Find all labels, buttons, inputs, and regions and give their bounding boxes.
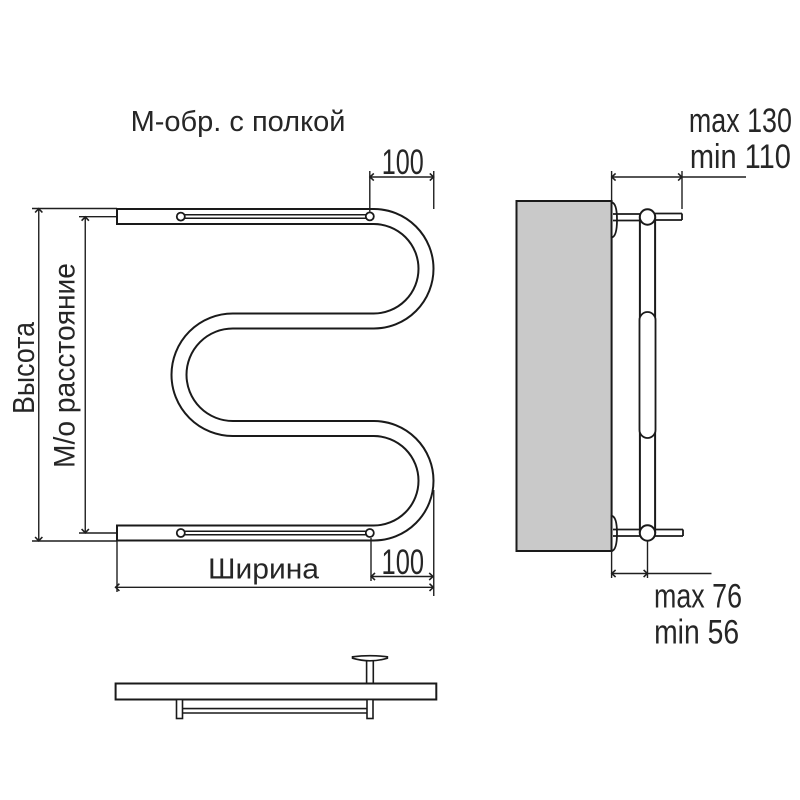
svg-text:М/о расстояние: М/о расстояние xyxy=(49,263,82,468)
svg-text:max 130: max 130 xyxy=(689,102,792,140)
svg-text:М-обр. с полкой: М-обр. с полкой xyxy=(131,106,346,138)
svg-text:100: 100 xyxy=(382,143,424,182)
svg-text:Ширина: Ширина xyxy=(208,554,320,586)
svg-text:Высота: Высота xyxy=(6,321,41,414)
svg-text:min 56: min 56 xyxy=(654,613,739,651)
svg-text:100: 100 xyxy=(382,543,425,582)
svg-text:max 76: max 76 xyxy=(654,577,742,615)
svg-text:min 110: min 110 xyxy=(690,138,791,176)
